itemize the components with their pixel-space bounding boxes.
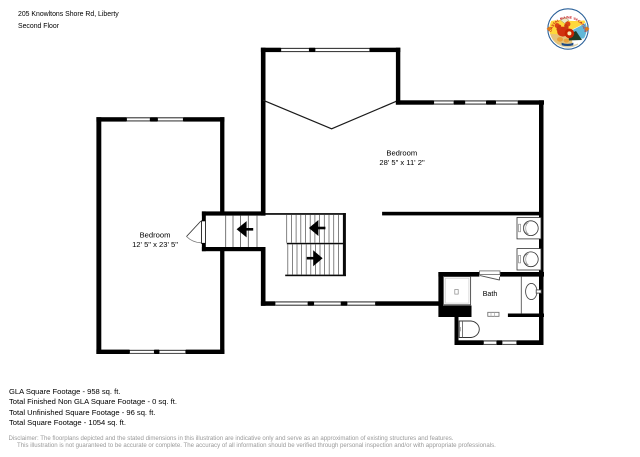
svg-text:28' 5" x 11' 2": 28' 5" x 11' 2" — [379, 158, 425, 167]
svg-text:Bedroom: Bedroom — [140, 231, 171, 240]
svg-text:Bath: Bath — [483, 290, 498, 298]
svg-text:12' 5" x 23' 5": 12' 5" x 23' 5" — [132, 240, 178, 249]
svg-text:Bedroom: Bedroom — [386, 148, 417, 157]
